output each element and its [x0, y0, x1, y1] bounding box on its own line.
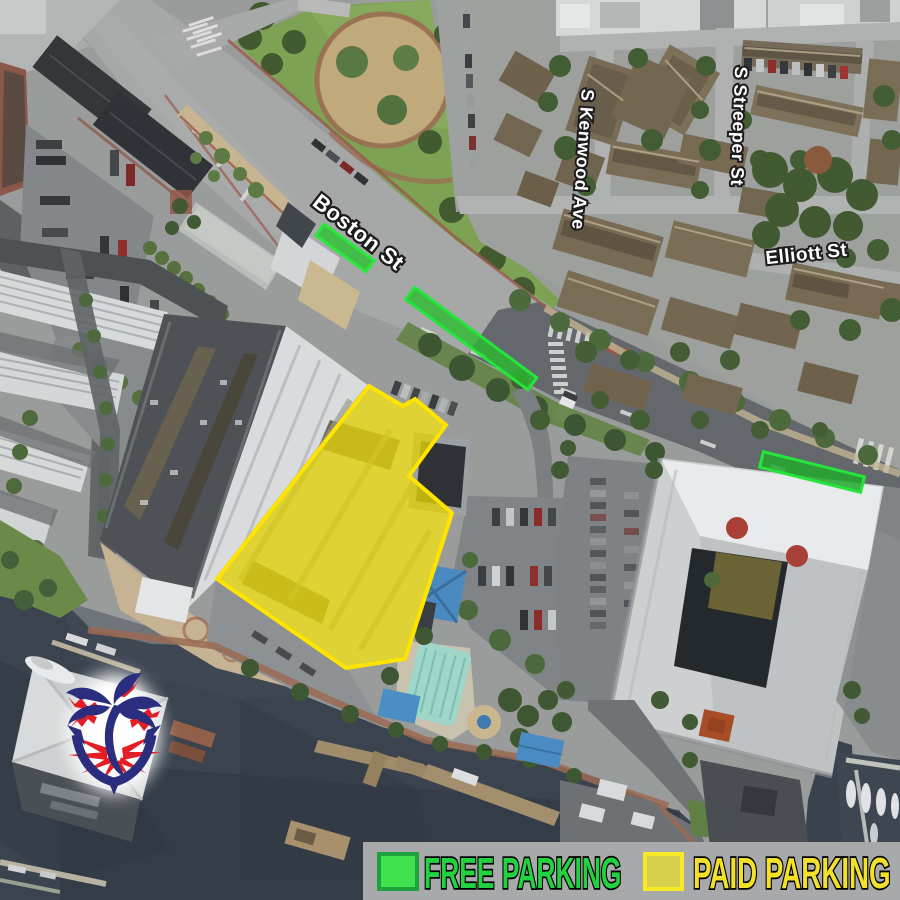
svg-text:S Streeper St: S Streeper St [727, 66, 751, 186]
svg-text:FREE PARKING: FREE PARKING [424, 848, 621, 898]
svg-text:PAID PARKING: PAID PARKING [693, 849, 891, 898]
